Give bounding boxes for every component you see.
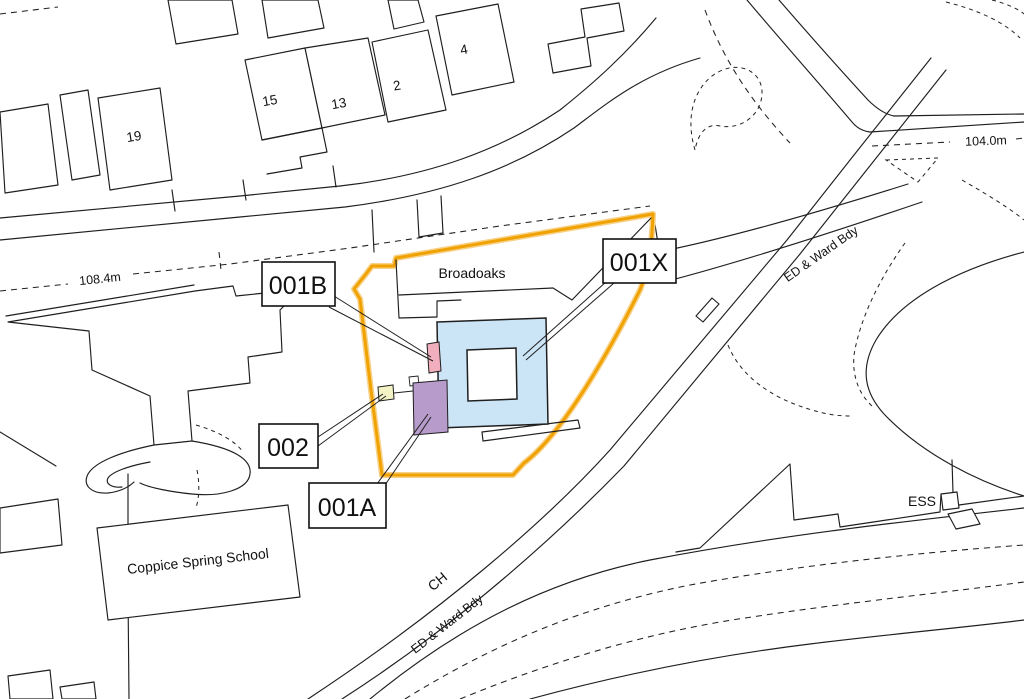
house-outline bbox=[548, 3, 624, 73]
dashed-road-line bbox=[0, 7, 58, 14]
parcel-002-block bbox=[378, 385, 394, 401]
building-outline bbox=[0, 499, 62, 553]
parcel-edge bbox=[959, 496, 1024, 505]
southeast-parcels: ESS bbox=[676, 460, 1024, 552]
footpath-dashed bbox=[196, 470, 199, 508]
parcel-001X-building bbox=[437, 318, 548, 428]
railway-corridor-dashed bbox=[405, 545, 1024, 699]
plot-divider bbox=[333, 166, 336, 187]
plot-divider bbox=[372, 210, 374, 252]
fence-line bbox=[0, 432, 56, 466]
ess-label: ESS bbox=[908, 493, 936, 509]
dashed-road-line bbox=[0, 284, 68, 291]
house-outline bbox=[60, 90, 100, 180]
verge-curve bbox=[866, 252, 1024, 496]
utility-line bbox=[952, 460, 953, 493]
lower-road-edge bbox=[530, 620, 1024, 699]
elevation-left: 108.4m bbox=[79, 270, 122, 288]
plot-divider bbox=[441, 196, 443, 233]
west-buildings bbox=[0, 285, 288, 699]
parcel-line bbox=[399, 288, 553, 295]
label-001X[interactable]: 001X bbox=[603, 239, 676, 283]
road-crossing-box bbox=[696, 298, 719, 322]
building-outline bbox=[60, 682, 96, 699]
broadoaks-label: Broadoaks bbox=[439, 265, 506, 281]
footpath-dashed bbox=[196, 425, 243, 452]
parcel-line bbox=[396, 260, 399, 318]
road-edge-east bbox=[658, 184, 908, 252]
elevation-right: 104.0m bbox=[965, 133, 1007, 148]
leader-001B bbox=[334, 296, 431, 357]
railway-corridor-dashed bbox=[460, 582, 1024, 699]
site-plan-map: Coppice Spring School ESS Broadoaks bbox=[0, 0, 1024, 699]
dashed-road-tick bbox=[219, 252, 221, 270]
road-edge-north bbox=[779, 0, 1024, 116]
label-001B-text: 001B bbox=[269, 272, 327, 300]
ward-boundary-label-s: ED & Ward Bdy bbox=[408, 591, 486, 656]
ch-label: CH bbox=[424, 569, 450, 594]
vegetation-loop bbox=[691, 67, 762, 150]
parcel-001B-strip bbox=[427, 342, 441, 373]
plot-divider bbox=[417, 200, 419, 237]
label-001B[interactable]: 001B bbox=[262, 262, 335, 306]
dashed-verge bbox=[705, 10, 790, 143]
verge-triangle bbox=[886, 158, 938, 182]
ess-substation-box bbox=[941, 492, 959, 510]
plot-divider bbox=[243, 180, 246, 200]
map-canvas: Coppice Spring School ESS Broadoaks bbox=[0, 0, 1024, 699]
label-001A[interactable]: 001A bbox=[309, 483, 386, 528]
roundabout-arc bbox=[992, 0, 1024, 14]
footpath-curve bbox=[107, 462, 150, 487]
house-outline bbox=[388, 0, 424, 29]
large-building-outline bbox=[8, 286, 288, 445]
road-edge-north bbox=[747, 0, 1024, 132]
house-number-13: 13 bbox=[330, 95, 347, 112]
house-outline bbox=[168, 0, 238, 44]
house-number-15: 15 bbox=[261, 92, 278, 109]
label-002-text: 002 bbox=[267, 434, 309, 462]
parcel-line bbox=[437, 300, 461, 317]
vegetation-edge bbox=[728, 345, 850, 416]
house-outline bbox=[262, 0, 324, 38]
house-outline bbox=[436, 4, 514, 95]
ess-structure bbox=[948, 509, 980, 529]
label-002[interactable]: 002 bbox=[259, 424, 318, 468]
vegetation-edge bbox=[854, 243, 905, 406]
building-outline bbox=[8, 670, 53, 699]
house-outline bbox=[0, 104, 58, 193]
elevation-dashed-line bbox=[1016, 138, 1024, 139]
label-001X-text: 001X bbox=[610, 249, 669, 277]
main-road-edge bbox=[308, 58, 931, 699]
leader-001B bbox=[329, 307, 433, 361]
footpath-curve bbox=[140, 441, 250, 495]
elevation-dashed-line bbox=[872, 142, 950, 146]
label-001A-text: 001A bbox=[318, 494, 377, 522]
plot-divider bbox=[172, 190, 175, 211]
houses bbox=[0, 0, 624, 252]
parcel-line bbox=[399, 317, 437, 318]
parcel-edge bbox=[676, 464, 941, 552]
house-number-19: 19 bbox=[125, 128, 142, 145]
verge-arc bbox=[962, 180, 1024, 220]
roundabout-arc bbox=[946, 2, 1020, 38]
parcel-line bbox=[394, 391, 413, 393]
footpath-curve bbox=[86, 445, 154, 493]
